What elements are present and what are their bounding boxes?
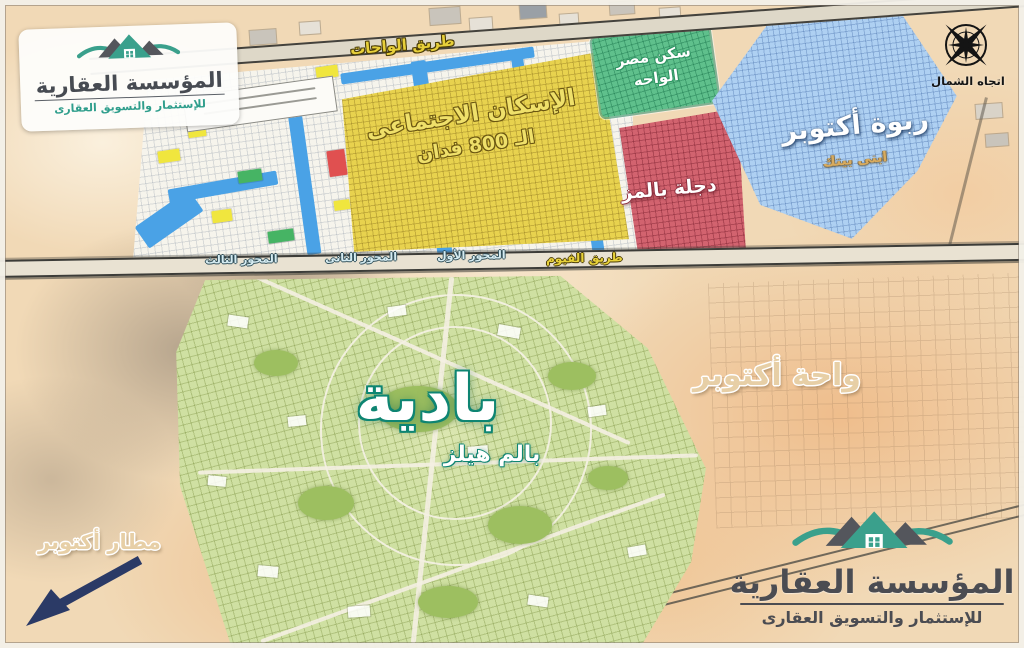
october-oasis-label: واحة أكتوبر: [693, 358, 861, 393]
company-tagline: للإستثمار والتسويق العقارى: [724, 608, 1020, 627]
axis-second-label: المحور الثانى: [325, 250, 397, 264]
highway-building: [250, 29, 277, 45]
company-logo-bottom: المؤسسة العقارية للإستثمار والتسويق العق…: [724, 506, 1020, 640]
fayoum-road-label: طريق الفيوم: [546, 250, 623, 265]
masterplan-block: [211, 209, 232, 224]
company-logo-top: المؤسسة العقارية للإستثمار والتسويق العق…: [18, 22, 239, 132]
oasis-plot-grid: [708, 273, 1024, 529]
zone-badya-developer-label: بالم هيلز: [437, 442, 547, 467]
badya-building-cluster: [527, 595, 548, 608]
airport-direction-arrow: [18, 552, 153, 636]
highway-building: [610, 1, 635, 15]
highway-building: [300, 21, 321, 34]
right-side-road: [945, 97, 988, 258]
zone-badya-label: بادية: [345, 362, 510, 436]
badya-building-cluster: [637, 324, 657, 338]
zone-sakan-misr-label: سكن مصر الواحه: [603, 39, 706, 96]
october-airport-label: مطار أكتوبر: [38, 530, 161, 554]
badya-building-cluster: [587, 405, 606, 417]
map-canvas: سكن مصر الواحه طريق الواحات المحور الثال…: [0, 0, 1024, 648]
badya-park: [298, 486, 354, 520]
masterplan-block: [333, 199, 350, 211]
badya-park: [588, 466, 628, 490]
badya-park: [548, 362, 596, 390]
company-logo-icon: [752, 506, 992, 562]
badya-building-cluster: [288, 415, 307, 427]
highway-building: [520, 3, 547, 19]
company-name: المؤسسة العقارية: [724, 566, 1020, 600]
masterplan-block: [326, 149, 347, 177]
badya-building-cluster: [348, 605, 371, 618]
compass-rose-icon: [936, 15, 996, 75]
badya-building-cluster: [258, 565, 279, 578]
highway-building: [986, 133, 1009, 147]
axis-third-label: المحور الثالث: [205, 252, 278, 266]
badya-building-cluster: [627, 545, 646, 558]
wahat-road-label: طريق الواحات: [349, 31, 455, 58]
highway-building: [429, 7, 460, 25]
badya-park: [418, 586, 478, 618]
badya-park: [254, 350, 298, 376]
logo-divider: [740, 603, 1004, 606]
masterplan-block: [157, 149, 180, 164]
company-logo-icon: [75, 28, 180, 70]
axis-first-label: المحور الأول: [437, 248, 506, 262]
compass-label: اتجاه الشمال: [924, 74, 1012, 88]
badya-park: [488, 506, 552, 544]
badya-building-cluster: [208, 475, 227, 487]
badya-building-cluster: [227, 315, 248, 329]
masterplan-block: [267, 228, 294, 244]
